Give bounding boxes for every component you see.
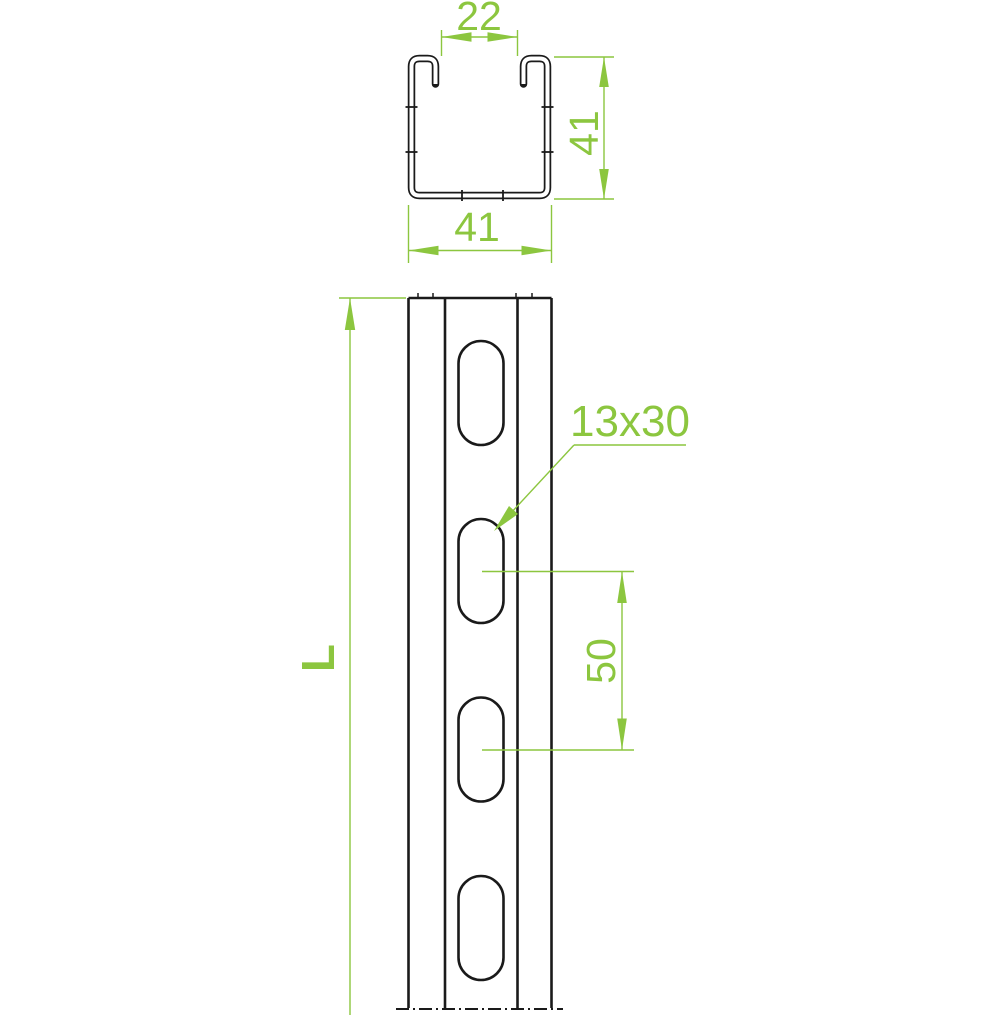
slot-hole <box>459 876 504 980</box>
cross-section-view <box>406 59 554 202</box>
dimension-label-opening: 22 <box>456 0 502 39</box>
strut-channel-technical-drawing: 22 41 41 <box>0 0 986 1015</box>
dimension-opening-22: 22 <box>442 0 518 56</box>
dimension-label-length: L <box>292 644 344 672</box>
arrow-down-icon <box>599 169 609 199</box>
dimension-slot-size: 13x30 <box>494 397 690 531</box>
drawing-stage: 22 41 41 <box>0 0 986 1015</box>
elevation-view <box>396 293 563 1009</box>
dimension-label-slot-pitch: 50 <box>578 638 624 684</box>
bend-marks <box>406 107 554 201</box>
dimension-height-41: 41 <box>554 57 614 199</box>
channel-profile-outline <box>412 59 548 196</box>
arrow-right-icon <box>522 246 552 256</box>
arrow-up-icon <box>345 298 355 330</box>
slot-holes <box>459 341 504 980</box>
arrow-left-icon <box>409 246 439 256</box>
arrow-down-icon <box>617 719 627 751</box>
dimension-label-slot-size: 13x30 <box>570 397 690 446</box>
dimension-width-41: 41 <box>409 204 552 263</box>
arrow-up-icon <box>617 572 627 604</box>
slot-hole <box>459 341 504 445</box>
dimension-length-L: L <box>292 298 406 1015</box>
arrow-up-icon <box>599 57 609 87</box>
dimension-label-width: 41 <box>454 204 500 250</box>
dimension-label-height: 41 <box>561 110 607 156</box>
rail-body <box>409 298 552 1008</box>
